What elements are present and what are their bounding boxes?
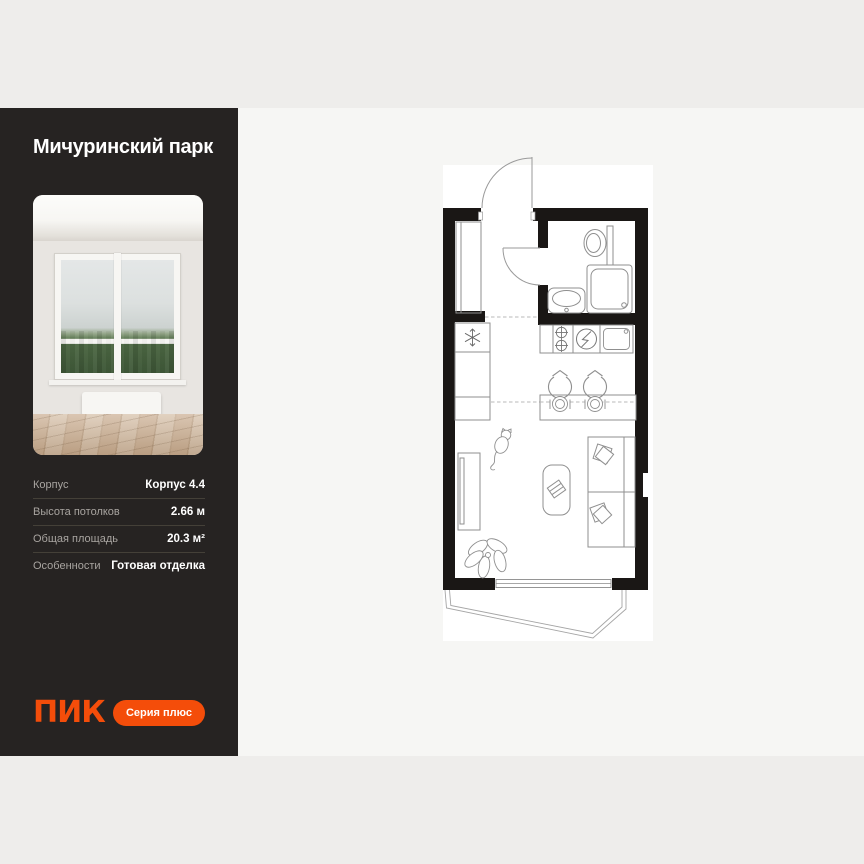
spec-value: Готовая отделка — [111, 560, 205, 572]
spec-label: Общая площадь — [33, 533, 118, 545]
apartment-photo — [33, 195, 203, 455]
listing-card: Мичуринский парк Корпус Корпус 4.4 Высот… — [0, 108, 864, 756]
spec-label: Корпус — [33, 479, 68, 491]
spec-value: 2.66 м — [171, 506, 205, 518]
spec-label: Особенности — [33, 560, 101, 572]
spec-row-ceiling-height: Высота потолков 2.66 м — [33, 499, 205, 526]
specs-list: Корпус Корпус 4.4 Высота потолков 2.66 м… — [33, 472, 205, 579]
spec-row-total-area: Общая площадь 20.3 м² — [33, 526, 205, 553]
spec-row-building: Корпус Корпус 4.4 — [33, 472, 205, 499]
washbasin-icon — [548, 288, 585, 313]
sidebar-footer: ПИК Серия плюс — [33, 698, 205, 728]
pik-logo[interactable]: ПИК — [33, 698, 105, 728]
floor-plan — [440, 155, 656, 645]
spec-value: 20.3 м² — [167, 533, 205, 545]
panoramic-window-icon — [495, 578, 612, 590]
photo-radiator — [82, 392, 161, 416]
shower-icon — [587, 265, 632, 313]
photo-window-mullion — [114, 253, 121, 380]
spec-row-features: Особенности Готовая отделка — [33, 553, 205, 579]
photo-window — [54, 253, 181, 380]
sofa-icon — [588, 437, 635, 547]
page-title: Мичуринский парк — [33, 136, 213, 159]
kitchen-cabinets — [455, 352, 490, 420]
photo-windowsill — [49, 380, 186, 385]
desk-icon — [458, 453, 480, 530]
spec-value: Корпус 4.4 — [145, 479, 205, 491]
photo-ceiling — [33, 195, 203, 241]
series-plus-button[interactable]: Серия плюс — [113, 700, 205, 726]
photo-wood-floor — [33, 414, 203, 455]
coffee-table-icon — [543, 465, 570, 515]
fridge-icon — [455, 323, 490, 352]
spec-label: Высота потолков — [33, 506, 120, 518]
facade-notch — [643, 473, 648, 497]
property-sidebar: Мичуринский парк Корпус Корпус 4.4 Высот… — [0, 108, 238, 756]
